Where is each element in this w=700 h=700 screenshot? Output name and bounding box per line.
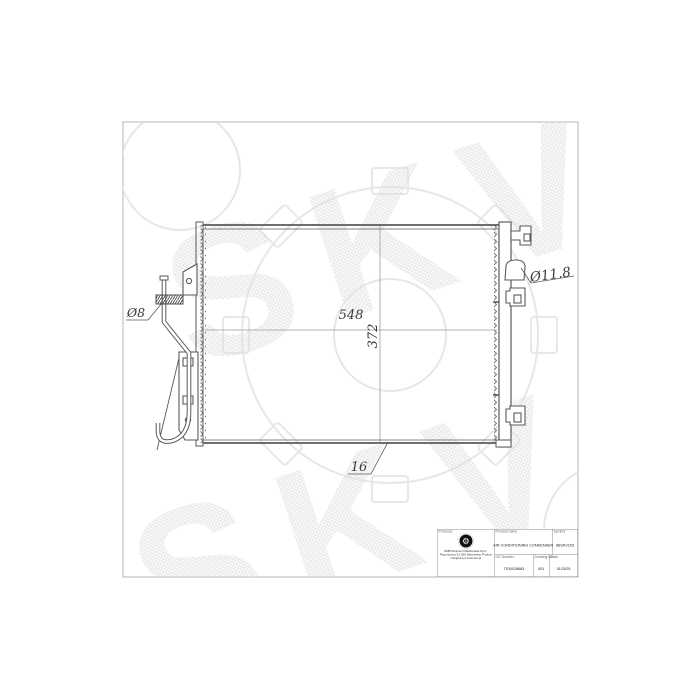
company-line-3: info@skv.pl www.skv.pl (440, 557, 492, 561)
symbol-value: 86SKV153 (553, 536, 578, 555)
technical-drawing: SKV SKV (0, 0, 700, 700)
dim-core-depth: 16 (351, 460, 368, 475)
watermark-letters-top: SKV (141, 67, 646, 406)
low-right-bracket-hole (514, 413, 521, 422)
date-cell: Date 01/2025 (550, 555, 578, 576)
product-name-value: AIR CONDITIONING CONDENSER (495, 536, 553, 555)
dim-core-height: 372 (366, 324, 381, 349)
dim-pipe-diameter: Ø8 (126, 305, 145, 320)
date-value: 01/2025 (550, 561, 578, 576)
drawing-no-value: 001 (534, 561, 550, 576)
pipe-clamp (156, 295, 183, 304)
mid-right-bracket-hole (514, 295, 521, 303)
title-block: Producer ⚙ SMB Wojciech Maćkowiak Sp.K. … (437, 529, 578, 577)
top-right-bracket-hole (524, 234, 530, 241)
product-name-label: Product name (496, 530, 518, 534)
drawing-no-cell: Drawing No. 001 (534, 555, 550, 576)
oe-number-label: OE Number (496, 556, 514, 560)
producer-cell: Producer ⚙ SMB Wojciech Maćkowiak Sp.K. … (438, 530, 495, 577)
date-label: Date (551, 556, 558, 560)
symbol-label: Symbol (554, 530, 566, 534)
product-name-cell: Product name AIR CONDITIONING CONDENSER (495, 530, 553, 555)
drawing-sheet: SKV SKV (0, 0, 700, 700)
top-left-bracket-hole (186, 278, 191, 283)
pipe-end-cap (160, 276, 168, 280)
company-logo: ⚙ (458, 534, 473, 549)
oe-number-value: 7700428883 (495, 561, 534, 576)
symbol-cell: Symbol 86SKV153 (553, 530, 578, 555)
gear-logo-icon: ⚙ (462, 537, 470, 546)
right-bottom-foot (496, 440, 511, 447)
oe-number-cell: OE Number 7700428883 (495, 555, 534, 576)
producer-label: Producer (439, 530, 453, 534)
dim-core-width: 548 (339, 308, 364, 323)
